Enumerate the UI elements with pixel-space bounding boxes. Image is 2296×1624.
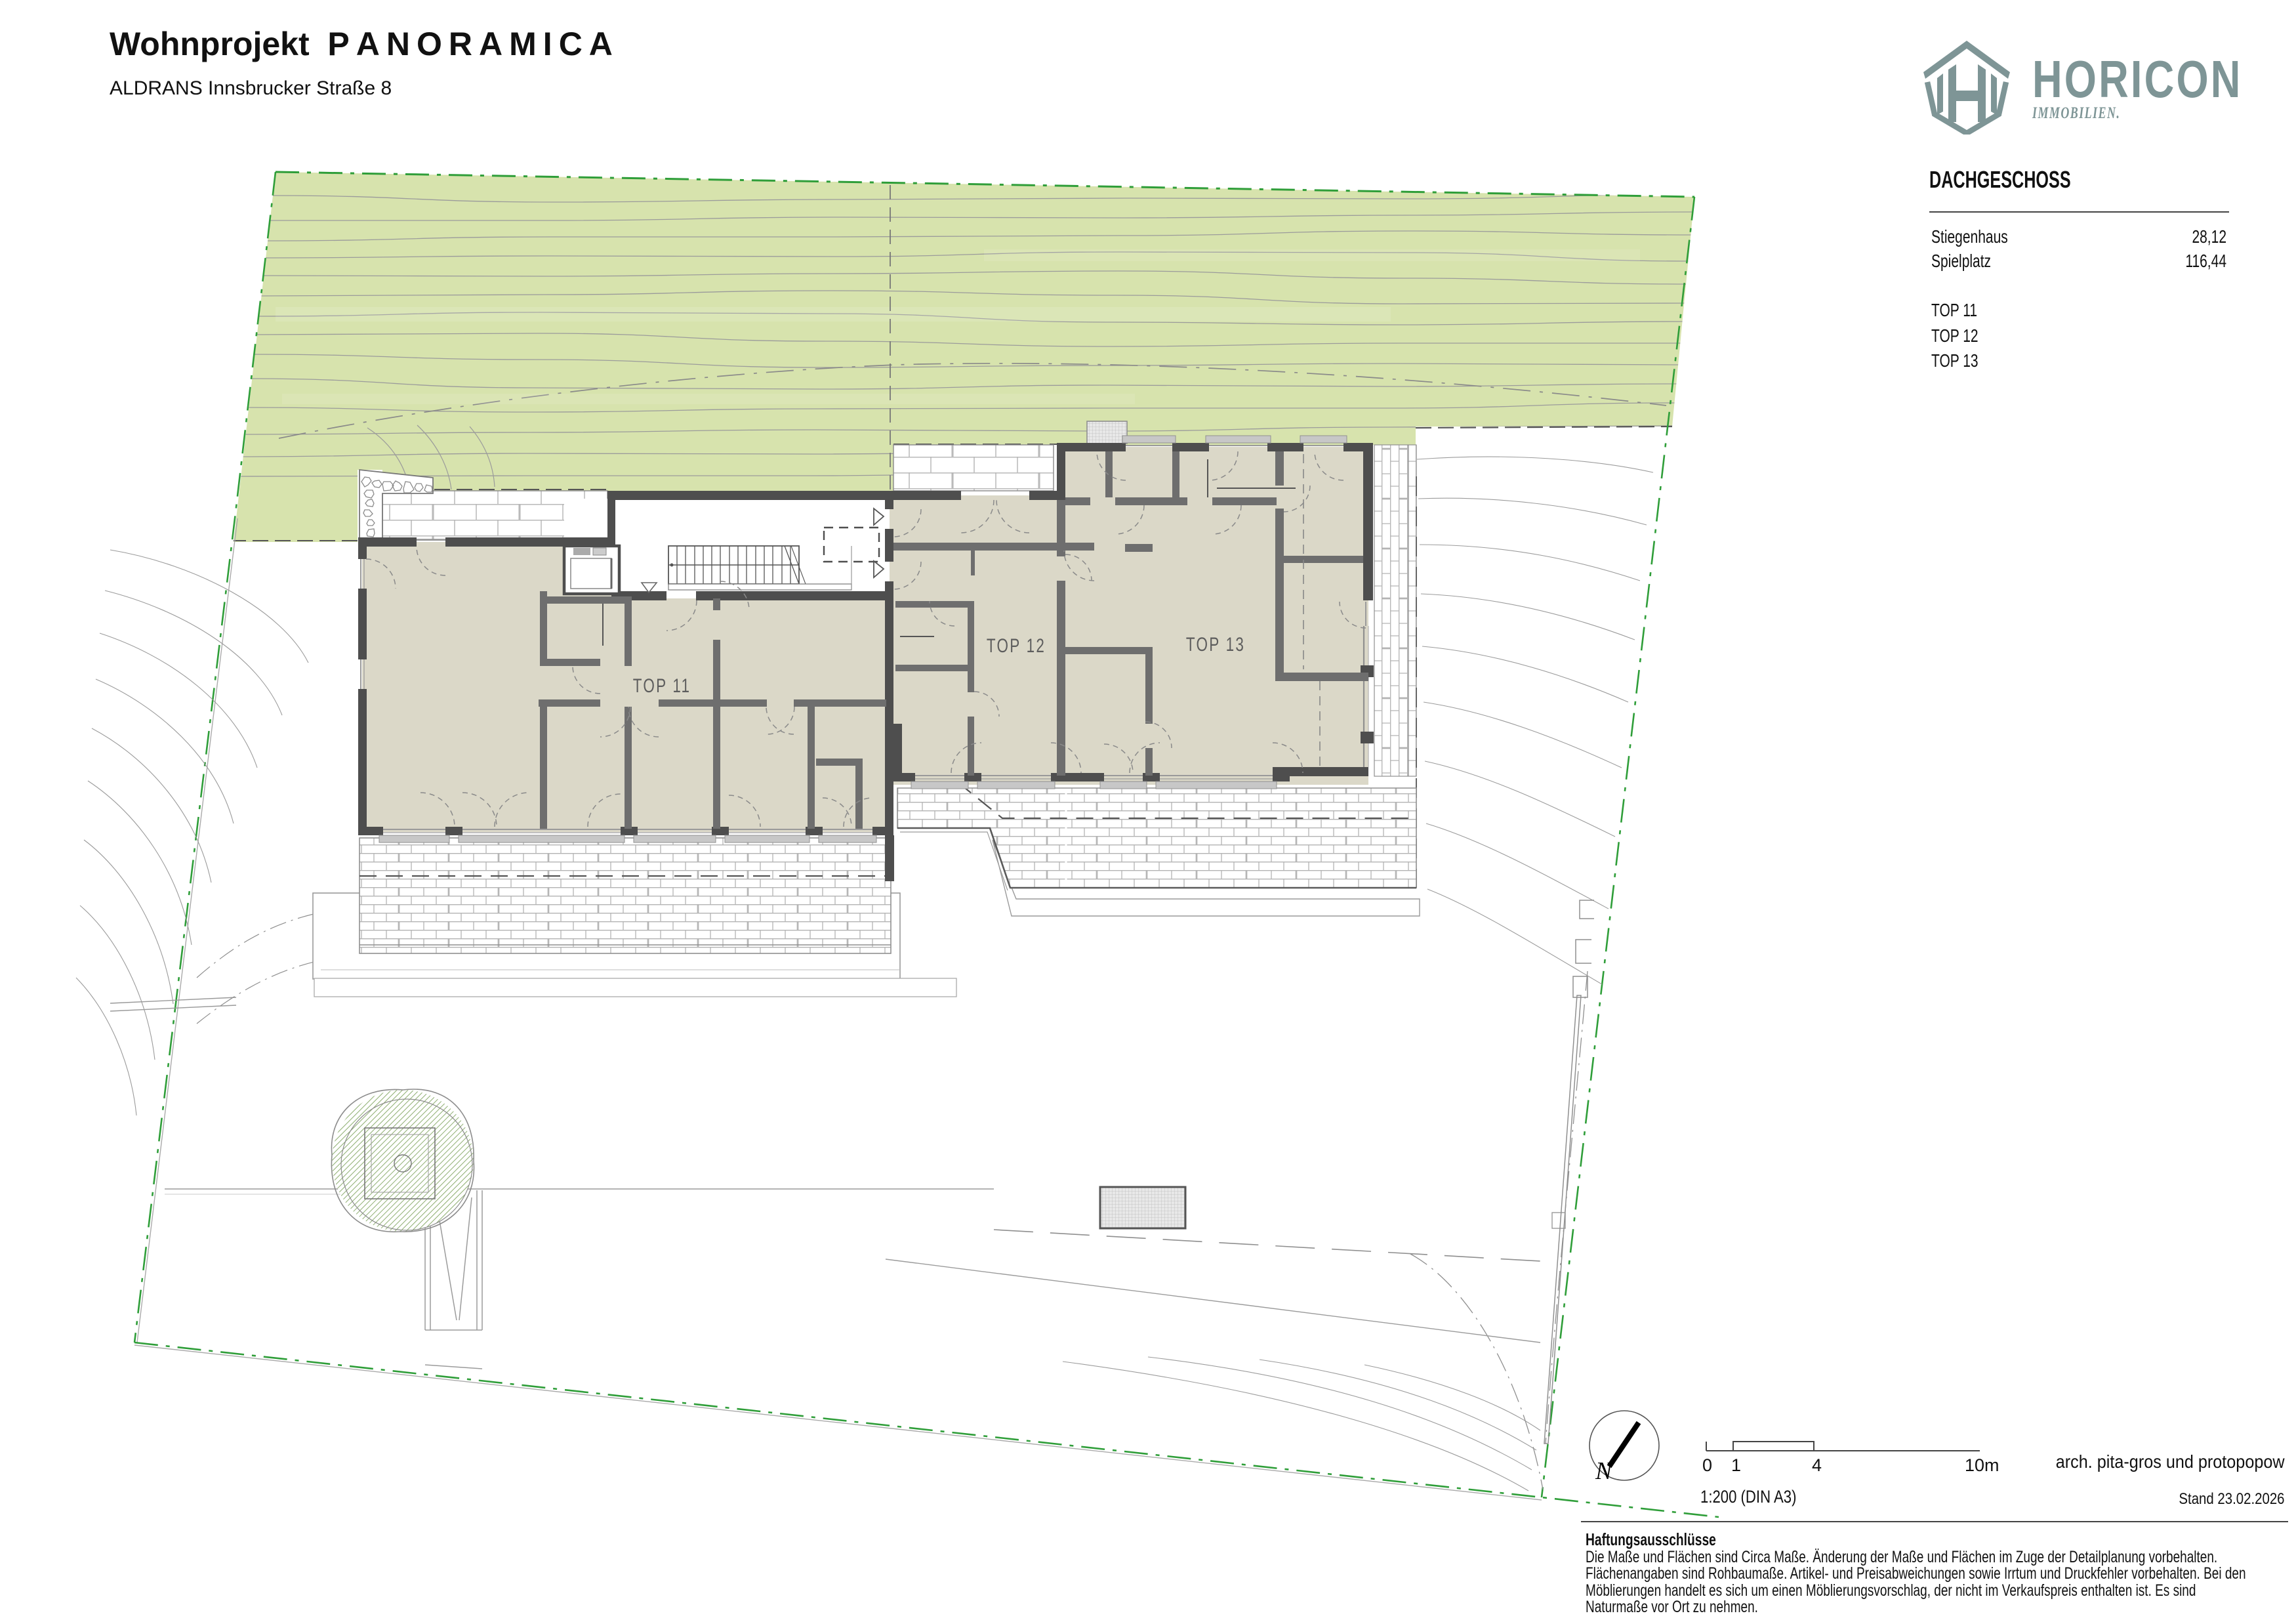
svg-text:TOP 11: TOP 11 [633,675,691,697]
svg-text:TOP 13: TOP 13 [1186,633,1245,656]
svg-text:TOP 12: TOP 12 [987,635,1046,657]
